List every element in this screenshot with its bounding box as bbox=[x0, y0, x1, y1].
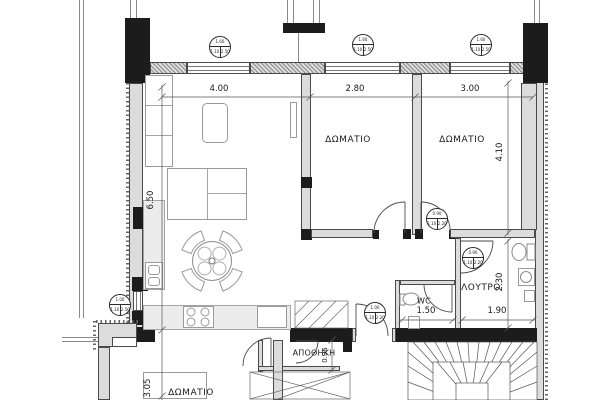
room-label-bedroom2: ΔΩΜΑΤΙΟ bbox=[439, 135, 485, 145]
dim-living-width: 4.00 bbox=[210, 84, 229, 94]
room-label-lower-bedroom: ΔΩΜΑΤΙΟ bbox=[168, 388, 214, 398]
dim-bedroom1-width: 2.80 bbox=[346, 84, 365, 94]
dim-bathroom-width: 1.90 bbox=[488, 306, 507, 316]
room-label-bathroom: ΛΟΥΤΡΟ bbox=[461, 283, 501, 293]
room-label-wc: WC bbox=[417, 297, 431, 306]
room-label-bedroom1: ΔΩΜΑΤΙΟ bbox=[325, 135, 371, 145]
dim-wc-width: 1.50 bbox=[417, 306, 436, 316]
dim-lower-bedroom-depth: 3.05 bbox=[143, 379, 153, 398]
window-tag-bedroom2: 1.60 1.102.50 bbox=[470, 34, 492, 56]
dim-bedroom2-width: 3.00 bbox=[461, 84, 480, 94]
dim-living-depth: 6.50 bbox=[146, 191, 156, 210]
window-tag-kitchen: 1.00 1.102.50 bbox=[109, 294, 131, 316]
door-tag-entrance: 1.00 1.102.20 bbox=[364, 302, 386, 324]
dim-bedroom2-depth: 4.10 bbox=[495, 143, 505, 162]
dining-table bbox=[182, 231, 242, 291]
plan-linework bbox=[0, 0, 600, 400]
room-label-storage: ΑΠΟΘΗΚΗ bbox=[293, 349, 336, 358]
doors bbox=[243, 202, 493, 366]
staircase bbox=[408, 342, 537, 400]
window-tag-bedroom1: 1.60 1.102.50 bbox=[352, 34, 374, 56]
door-tag-bathroom: 0.90 1.102.20 bbox=[462, 247, 484, 269]
stove-burners bbox=[187, 308, 209, 326]
door-tag-bedroom2: 0.90 1.102.20 bbox=[426, 208, 448, 230]
window-tag-living: 1.60 1.102.50 bbox=[209, 36, 231, 58]
floor-plan-canvas: 1.60 1.102.50 1.60 1.102.50 1.60 1.102.5… bbox=[0, 0, 600, 400]
